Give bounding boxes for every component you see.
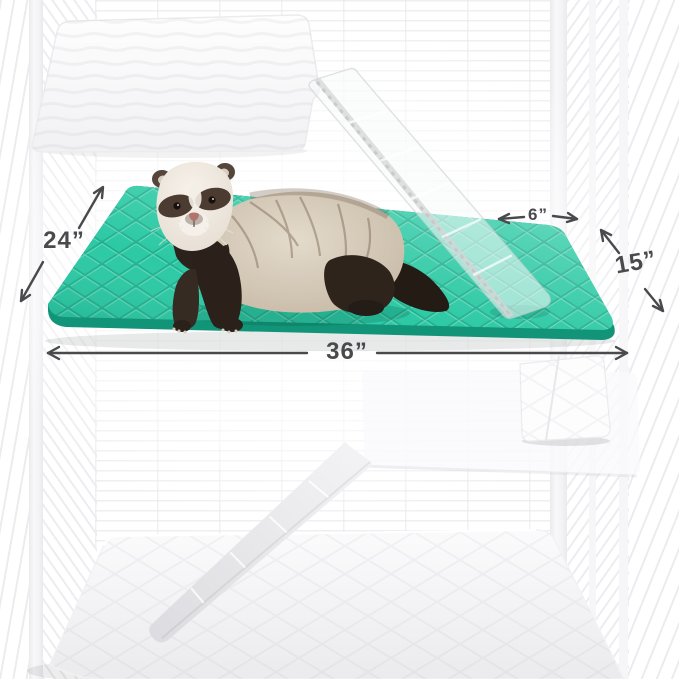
dimension-label-6: 6” bbox=[516, 206, 560, 223]
arrow-24-up bbox=[79, 187, 103, 228]
arrow-15-up bbox=[601, 230, 619, 253]
dimension-label-24: 24” bbox=[36, 229, 92, 253]
dimension-label-36: 36” bbox=[319, 340, 375, 364]
bottom-liner bbox=[27, 530, 624, 679]
product-image: 24” 36” 6” 15” bbox=[0, 0, 679, 679]
arrow-24-down bbox=[21, 262, 43, 301]
top-shelf-liner bbox=[32, 15, 319, 158]
folded-liner-corner bbox=[520, 356, 610, 446]
arrow-15-down bbox=[645, 289, 663, 311]
